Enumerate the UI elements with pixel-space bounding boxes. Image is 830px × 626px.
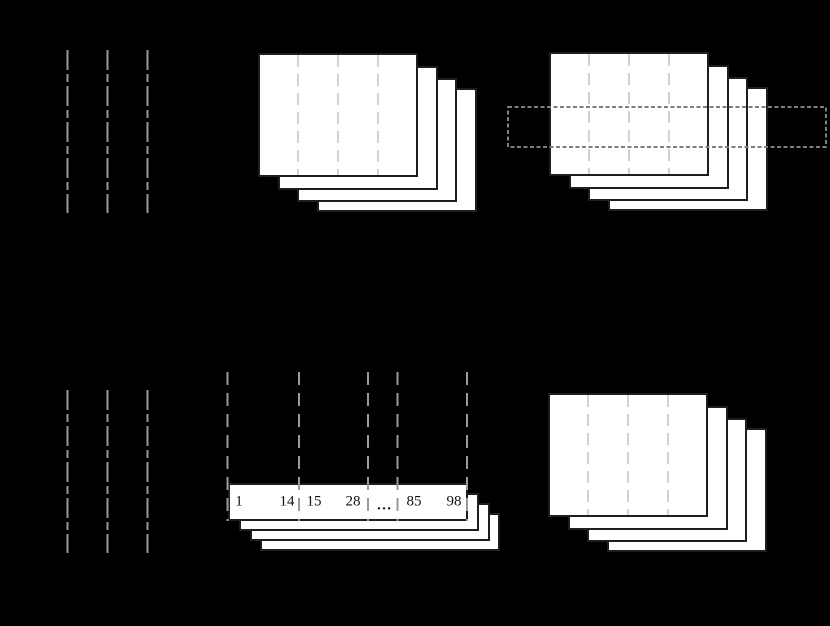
frame-front <box>548 393 708 517</box>
frame-index-label: 15 <box>307 494 322 511</box>
frame-dividers <box>550 395 706 515</box>
guide-lines-top-left <box>68 50 148 213</box>
frame-front <box>258 53 418 177</box>
strip-front: 1 14 15 28 … 85 98 <box>228 483 468 521</box>
frame-index-label: 1 <box>235 494 243 511</box>
frame-index-label: 28 <box>346 494 361 511</box>
guide-lines-bottom-left <box>68 390 148 553</box>
frame-index-label: 98 <box>447 494 462 511</box>
frame-index-label: 85 <box>407 494 422 511</box>
frame-dividers <box>260 55 416 175</box>
frame-index-label: 14 <box>280 494 295 511</box>
frame-dividers <box>551 54 707 174</box>
ellipsis-label: … <box>377 498 394 515</box>
frame-front <box>549 52 709 176</box>
figure-canvas: 1 14 15 28 … 85 98 <box>0 0 830 626</box>
